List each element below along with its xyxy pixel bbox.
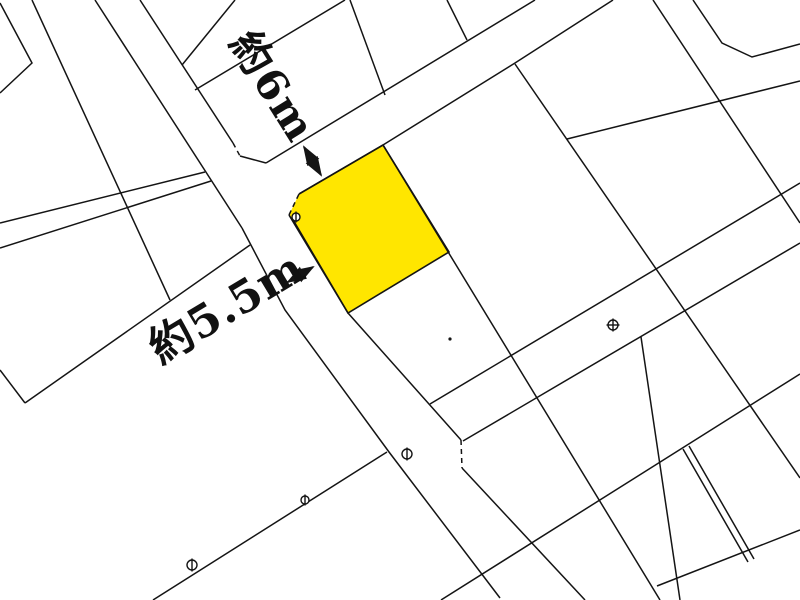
boundary-line — [299, 0, 613, 194]
boundary-line — [266, 0, 535, 163]
boundary-line — [32, 0, 170, 300]
survey-marker-circle-vertical-bar-icon — [301, 495, 309, 506]
boundary-line — [641, 337, 680, 600]
boundary-line — [462, 468, 585, 600]
boundary-line — [153, 452, 387, 600]
boundary-line — [0, 370, 25, 403]
cadastral-map: 約6m 約5.5m — [0, 0, 800, 600]
boundary-line — [447, 0, 467, 40]
boundary-line — [441, 374, 800, 600]
boundary-line — [430, 183, 800, 404]
boundary-line — [463, 243, 800, 441]
boundary-line — [657, 530, 800, 586]
boundary-line — [693, 0, 800, 57]
boundary-line — [689, 446, 754, 559]
boundary-line — [0, 3, 32, 93]
survey-marker-circle-vertical-bar-icon — [187, 559, 197, 572]
boundary-line — [233, 143, 240, 156]
boundary-line — [515, 64, 800, 478]
boundary-line — [683, 449, 748, 562]
parcel-boundary-lines — [0, 0, 800, 600]
boundary-line — [567, 81, 800, 139]
survey-marker-circle-vertical-bar-icon — [402, 448, 412, 461]
road-width-arrow-6m — [304, 147, 321, 175]
survey-marker-circle-cross-icon — [607, 319, 620, 332]
boundary-line — [140, 0, 233, 143]
subject-parcel-highlight — [289, 145, 449, 313]
cadastral-map-canvas — [0, 0, 800, 600]
boundary-line — [461, 440, 462, 468]
boundary-line — [240, 156, 266, 163]
boundary-line — [350, 0, 385, 95]
survey-marker-dot-icon — [448, 337, 451, 340]
